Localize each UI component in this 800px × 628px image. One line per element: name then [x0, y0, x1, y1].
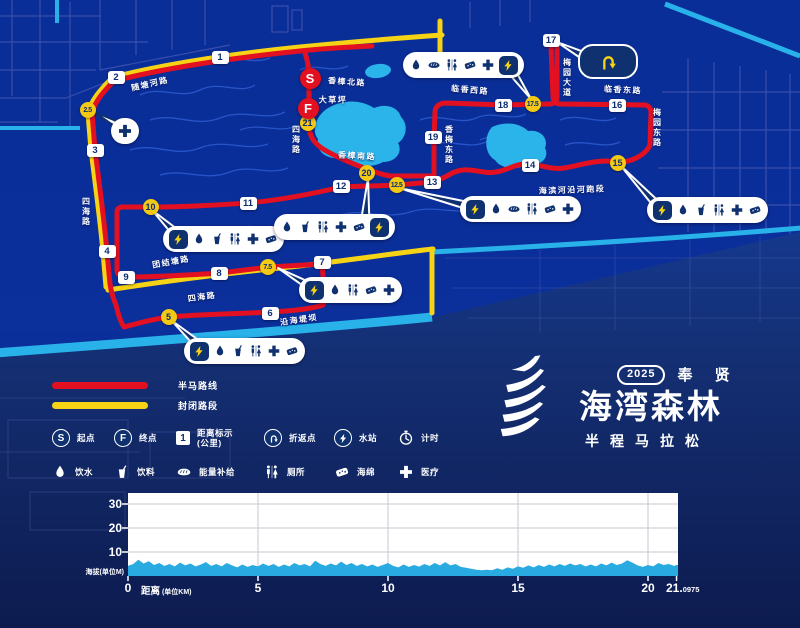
- callout-station-17p5km: [403, 52, 524, 78]
- legend-item-medical: 医疗: [398, 464, 452, 480]
- distance-marking-km-icon-wrap: 1: [176, 431, 190, 445]
- bolt-icon: [338, 433, 349, 444]
- uturn-callout: [578, 44, 638, 79]
- km-marker-8: 8: [211, 267, 228, 280]
- turnaround-point-icon-wrap: [264, 429, 282, 447]
- map-overlay: 122.5345677.58910111212.5131415161717.51…: [0, 0, 800, 628]
- cross-icon: [481, 58, 495, 72]
- callout-station-7p5km: [299, 277, 402, 303]
- legend-toilet-label: 厕所: [287, 467, 305, 477]
- cross-icon: [117, 123, 133, 139]
- legend-water-station-label: 水站: [359, 433, 377, 443]
- drop-icon: [676, 203, 690, 217]
- cup-icon: [231, 344, 245, 358]
- bolt-icon: [308, 284, 321, 297]
- legend-finish-point-badge: F: [114, 429, 132, 447]
- legend-item-water-station: 水站: [334, 428, 398, 448]
- xtick-10: 10: [375, 581, 401, 595]
- logo-subtitle: 半程马拉松: [585, 431, 739, 451]
- drop-icon: [328, 283, 342, 297]
- legend-turnaround-point-badge: [264, 429, 282, 447]
- km-marker-9: 9: [118, 271, 135, 284]
- km-marker-2.5: 2.5: [80, 102, 96, 118]
- beverage-icon-wrap: [114, 464, 130, 480]
- road-label-2: 大草坪: [319, 95, 348, 106]
- bread-icon: [176, 464, 192, 480]
- cross-icon: [561, 202, 575, 216]
- sponge-icon: [543, 202, 557, 216]
- cup-icon: [210, 232, 224, 246]
- cross-icon: [382, 283, 396, 297]
- toilet-icon: [525, 202, 539, 216]
- ytick-30: 30: [96, 497, 122, 511]
- km-marker-11: 11: [240, 197, 257, 210]
- toilet-icon: [445, 58, 459, 72]
- xtick-15: 15: [505, 581, 531, 595]
- km-marker-1: 1: [212, 51, 229, 64]
- legend-item-energy-supply: 能量补给: [176, 464, 264, 480]
- km-marker-6: 6: [262, 307, 279, 320]
- road-label-11: 四海路: [81, 197, 92, 227]
- bolt-icon: [469, 203, 482, 216]
- road-label-8: 梅园东路: [652, 108, 663, 148]
- km-marker-13: 13: [424, 176, 441, 189]
- sponge-icon: [334, 464, 350, 480]
- road-label-4: 香樟南路: [338, 150, 377, 163]
- legend-closed-section-bar: [52, 402, 148, 409]
- callout-station-20km: [274, 214, 395, 240]
- ytick-20: 20: [96, 521, 122, 535]
- sponge-icon: [364, 283, 378, 297]
- legend-item-start-point: S起点: [52, 428, 114, 448]
- cross-icon: [334, 220, 348, 234]
- clock-icon: [398, 430, 414, 446]
- water-station-bolt: [499, 56, 518, 75]
- road-label-14: 沿海堤坝: [279, 312, 318, 328]
- drop-icon: [280, 220, 294, 234]
- uturn-icon: [598, 52, 618, 72]
- logo-text: 2025 奉 贤 海湾森林 半程马拉松: [579, 352, 739, 452]
- legend-row-1: S起点F终点1距离标示 (公里)折返点水站计时: [52, 428, 488, 448]
- logo-year-badge: 2025: [617, 365, 665, 385]
- drop-icon: [192, 232, 206, 246]
- legend: 半马路线封闭路段 S起点F终点1距离标示 (公里)折返点水站计时饮水饮料能量补给…: [52, 378, 488, 480]
- legend-turnaround-point-label: 折返点: [289, 433, 316, 443]
- callout-station-10km: [163, 226, 284, 252]
- km-marker-7.5: 7.5: [260, 259, 276, 275]
- toilet-icon: [316, 220, 330, 234]
- bolt-icon: [193, 345, 206, 358]
- cross-icon: [246, 232, 260, 246]
- legend-beverage-label: 饮料: [137, 467, 155, 477]
- bolt-icon: [172, 233, 185, 246]
- km-marker-19: 19: [425, 131, 442, 144]
- sponge-icon: [463, 58, 477, 72]
- legend-start-point-label: 起点: [77, 433, 95, 443]
- drinking-water-icon-wrap: [52, 464, 68, 480]
- road-label-5: 临香西路: [451, 83, 490, 97]
- sponge-icon: [352, 220, 366, 234]
- callout-station-5km: [184, 338, 305, 364]
- logo-title: 海湾森林: [579, 390, 739, 424]
- legend-item-timing: 计时: [398, 428, 452, 448]
- timing-icon-wrap: [398, 430, 414, 446]
- cup-icon: [694, 203, 708, 217]
- legend-item-sponge: 海绵: [334, 464, 398, 480]
- water-station-icon-wrap: [334, 429, 352, 447]
- legend-item-turnaround-point: 折返点: [264, 428, 334, 448]
- km-marker-20: 20: [359, 165, 375, 181]
- km-marker-17: 17: [543, 34, 560, 47]
- km-marker-12: 12: [333, 180, 350, 193]
- toilet-icon: [228, 232, 242, 246]
- legend-line-half-marathon-route: 半马路线: [52, 378, 488, 392]
- km-marker-3: 3: [87, 144, 104, 157]
- finish-marker: F: [298, 98, 319, 119]
- water-station-bolt: [466, 200, 485, 219]
- cup-icon: [114, 464, 130, 480]
- legend-half-marathon-route-label: 半马路线: [178, 379, 218, 392]
- km-marker-16: 16: [609, 99, 626, 112]
- bread-icon: [507, 202, 521, 216]
- sponge-icon: [285, 344, 299, 358]
- legend-half-marathon-route-bar: [52, 382, 148, 389]
- road-label-9: 香梅东路: [444, 125, 455, 165]
- km-marker-7: 7: [314, 256, 331, 269]
- callout-station-12p5km: [460, 196, 581, 222]
- water-station-bolt: [305, 281, 324, 300]
- bread-icon: [427, 58, 441, 72]
- marathon-course-map: 122.5345677.58910111212.5131415161717.51…: [0, 0, 800, 628]
- logo-region: 奉 贤: [677, 364, 738, 385]
- legend-closed-section-label: 封闭路段: [178, 399, 218, 412]
- km-marker-12.5: 12.5: [389, 177, 405, 193]
- road-label-7: 临香东路: [604, 84, 643, 97]
- drop-icon: [213, 344, 227, 358]
- bolt-icon: [373, 221, 386, 234]
- legend-km-box: 1: [176, 431, 190, 445]
- legend-distance-marking-km-label: 距离标示 (公里): [197, 428, 233, 448]
- road-label-12: 团结塘路: [151, 253, 190, 270]
- cross-icon: [730, 203, 744, 217]
- xtick-20: 20: [635, 581, 661, 595]
- y-axis-label: 海拔(单位M): [58, 567, 124, 577]
- legend-item-distance-marking-km: 1距离标示 (公里): [176, 428, 264, 448]
- water-station-bolt: [653, 201, 672, 220]
- toilet-icon: [712, 203, 726, 217]
- legend-item-drinking-water: 饮水: [52, 464, 114, 480]
- legend-item-finish-point: F终点: [114, 428, 176, 448]
- logo-swoosh-mark: [499, 352, 553, 452]
- medical-icon-wrap: [398, 464, 414, 480]
- cross-icon: [398, 464, 414, 480]
- x-axis-label: 距离 (单位KM): [141, 583, 192, 597]
- sponge-icon-wrap: [334, 464, 350, 480]
- legend-row-2: 饮水饮料能量补给厕所海绵医疗: [52, 464, 488, 480]
- cross-icon: [267, 344, 281, 358]
- start-marker: S: [300, 68, 321, 89]
- legend-line-closed-section: 封闭路段: [52, 398, 488, 412]
- km-marker-17.5: 17.5: [525, 96, 541, 112]
- event-logo: 2025 奉 贤 海湾森林 半程马拉松: [499, 352, 739, 452]
- km-marker-5: 5: [161, 309, 177, 325]
- legend-sponge-label: 海绵: [357, 467, 375, 477]
- legend-medical-label: 医疗: [421, 467, 439, 477]
- legend-timing-label: 计时: [421, 433, 439, 443]
- finish-point-icon-wrap: F: [114, 429, 132, 447]
- start-point-icon-wrap: S: [52, 429, 70, 447]
- road-label-3: 四海路: [291, 125, 302, 155]
- km-marker-14: 14: [522, 159, 539, 172]
- legend-icon-rows: S起点F终点1距离标示 (公里)折返点水站计时饮水饮料能量补给厕所海绵医疗: [52, 428, 488, 480]
- km-marker-10: 10: [143, 199, 159, 215]
- toilet-icon-wrap: [264, 464, 280, 480]
- road-label-10: 海滨河沿河跑段: [539, 183, 606, 196]
- xtick-5: 5: [245, 581, 271, 595]
- km-marker-2: 2: [108, 71, 125, 84]
- legend-water-station-badge: [334, 429, 352, 447]
- energy-supply-icon-wrap: [176, 464, 192, 480]
- water-station-bolt: [169, 230, 188, 249]
- legend-item-beverage: 饮料: [114, 464, 176, 480]
- legend-route-lines: 半马路线封闭路段: [52, 378, 488, 412]
- km-marker-15: 15: [610, 155, 626, 171]
- toilet-icon: [264, 464, 280, 480]
- bolt-icon: [502, 59, 515, 72]
- legend-finish-point-label: 终点: [139, 433, 157, 443]
- road-label-6: 梅园大道: [562, 58, 573, 98]
- drop-icon: [489, 202, 503, 216]
- water-station-bolt: [190, 342, 209, 361]
- toilet-icon: [249, 344, 263, 358]
- cup-icon: [298, 220, 312, 234]
- toilet-icon: [346, 283, 360, 297]
- xtick-final-decimals: 0975: [683, 585, 700, 594]
- road-label-1: 香樟北路: [328, 75, 367, 89]
- sponge-icon: [748, 203, 762, 217]
- legend-start-point-badge: S: [52, 429, 70, 447]
- uturn-icon: [268, 433, 279, 444]
- road-label-13: 四海路: [187, 290, 217, 305]
- legend-item-toilet: 厕所: [264, 464, 334, 480]
- road-label-0: 随塘河路: [130, 74, 170, 93]
- km-marker-18: 18: [495, 99, 512, 112]
- drop-icon: [409, 58, 423, 72]
- xtick-0: 0: [115, 581, 141, 595]
- bolt-icon: [656, 204, 669, 217]
- water-station-bolt: [370, 218, 389, 237]
- drop-icon: [52, 464, 68, 480]
- callout-aid-2p5km: [111, 118, 139, 144]
- ytick-10: 10: [96, 545, 122, 559]
- legend-energy-supply-label: 能量补给: [199, 467, 235, 477]
- x-axis-unit: (单位KM): [160, 589, 192, 596]
- xtick-final: 21.0975: [666, 581, 699, 595]
- legend-drinking-water-label: 饮水: [75, 467, 93, 477]
- km-marker-4: 4: [99, 245, 116, 258]
- callout-station-15km: [647, 197, 768, 223]
